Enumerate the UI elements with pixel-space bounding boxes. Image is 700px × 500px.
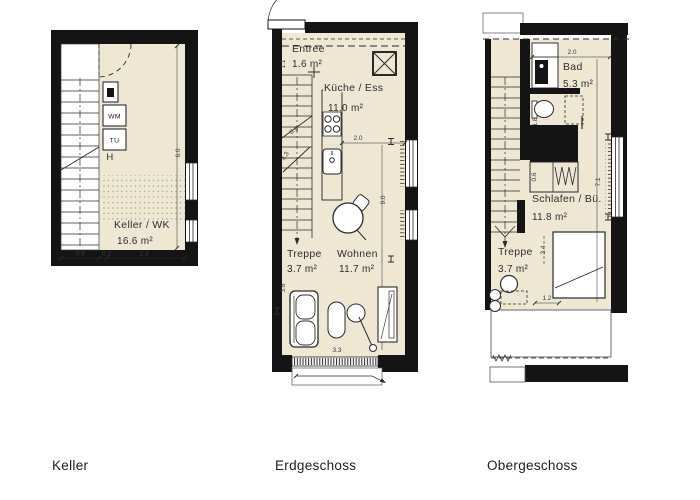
og-wc-unit — [532, 43, 558, 88]
eg-treppe-area: 3.7 m² — [287, 264, 318, 275]
dim-2-0: 2.0 — [567, 49, 576, 56]
stove — [323, 112, 341, 136]
eg-cabinet — [378, 287, 397, 342]
og-treppe-area: 3.7 m² — [498, 264, 529, 275]
caption-keller: Keller — [52, 458, 88, 473]
eg-entry-step — [292, 368, 386, 385]
keller-plan: WM TU H Keller / WK 16.6 m² 0.9 0.2 2.3 … — [40, 20, 210, 280]
dim-7-1: 7.1 — [595, 177, 602, 186]
eg-kueche-area: 11.0 m² — [328, 103, 364, 114]
erdgeschoss-plan: 2.0 1.1 0.9 4.3 9.0 3.6 3.3 — [260, 0, 430, 400]
dim-0-9: 0.9 — [75, 251, 84, 258]
eg-entree-label: Entree — [292, 43, 325, 55]
keller-room-label: Keller / WK — [114, 219, 170, 231]
dim-3-4: 3.4 — [540, 245, 547, 254]
og-bad-area: 5.3 m² — [563, 79, 594, 90]
dim-6-0: 6.0 — [175, 148, 182, 157]
floorplan-sheet: WM TU H Keller / WK 16.6 m² 0.9 0.2 2.3 … — [0, 0, 700, 500]
og-treppe-label: Treppe — [498, 246, 533, 258]
washer-label: WM — [108, 114, 121, 121]
dim-0-6: 0.6 — [531, 172, 538, 181]
eg-entree-area: 1.6 m² — [292, 59, 323, 70]
dim-2-0: 2.0 — [353, 135, 362, 142]
eg-coffee-table — [328, 302, 345, 338]
dim-1-8: 1.8 — [532, 117, 539, 126]
keller-stairs — [61, 44, 99, 250]
og-window — [605, 137, 623, 217]
og-dormer — [483, 13, 523, 33]
dim-1-2: 1.2 — [542, 295, 551, 302]
dryer-label: TU — [110, 138, 120, 145]
eg-entrance-door — [268, 0, 306, 29]
caption-erdgeschoss: Erdgeschoss — [275, 458, 356, 473]
eg-sofa — [290, 291, 318, 347]
eg-kueche-label: Küche / Ess — [324, 82, 383, 94]
eg-wohnen-area: 11.7 m² — [339, 264, 375, 275]
dim-3-3: 3.3 — [332, 347, 341, 354]
dim-1-1: 1.1 — [280, 59, 287, 68]
toilet — [535, 101, 554, 118]
eg-treppe-label: Treppe — [287, 248, 322, 260]
caption-obergeschoss: Obergeschoss — [487, 458, 578, 473]
dim-9-0: 9.0 — [380, 195, 387, 204]
dim-2-3: 2.3 — [139, 251, 148, 258]
og-schlafen-area: 11.8 m² — [532, 212, 568, 223]
dim-3-6: 3.6 — [280, 283, 287, 292]
og-schlafen-label: Schlafen / Bü. — [532, 193, 602, 205]
og-stool — [501, 276, 518, 293]
keller-room-area: 16.6 m² — [117, 236, 153, 247]
og-bad-label: Bad — [563, 61, 583, 73]
obergeschoss-plan: 2.0 1.8 0.6 7.1 3.4 1.2 Bad 5.3 m² Schla… — [475, 10, 645, 400]
keller-dotted-floor — [99, 175, 185, 222]
keller-h-label: H — [106, 152, 113, 163]
og-core-wall — [530, 125, 578, 162]
dim-0-2: 0.2 — [102, 251, 111, 258]
eg-wohnen-label: Wohnen — [337, 248, 378, 260]
